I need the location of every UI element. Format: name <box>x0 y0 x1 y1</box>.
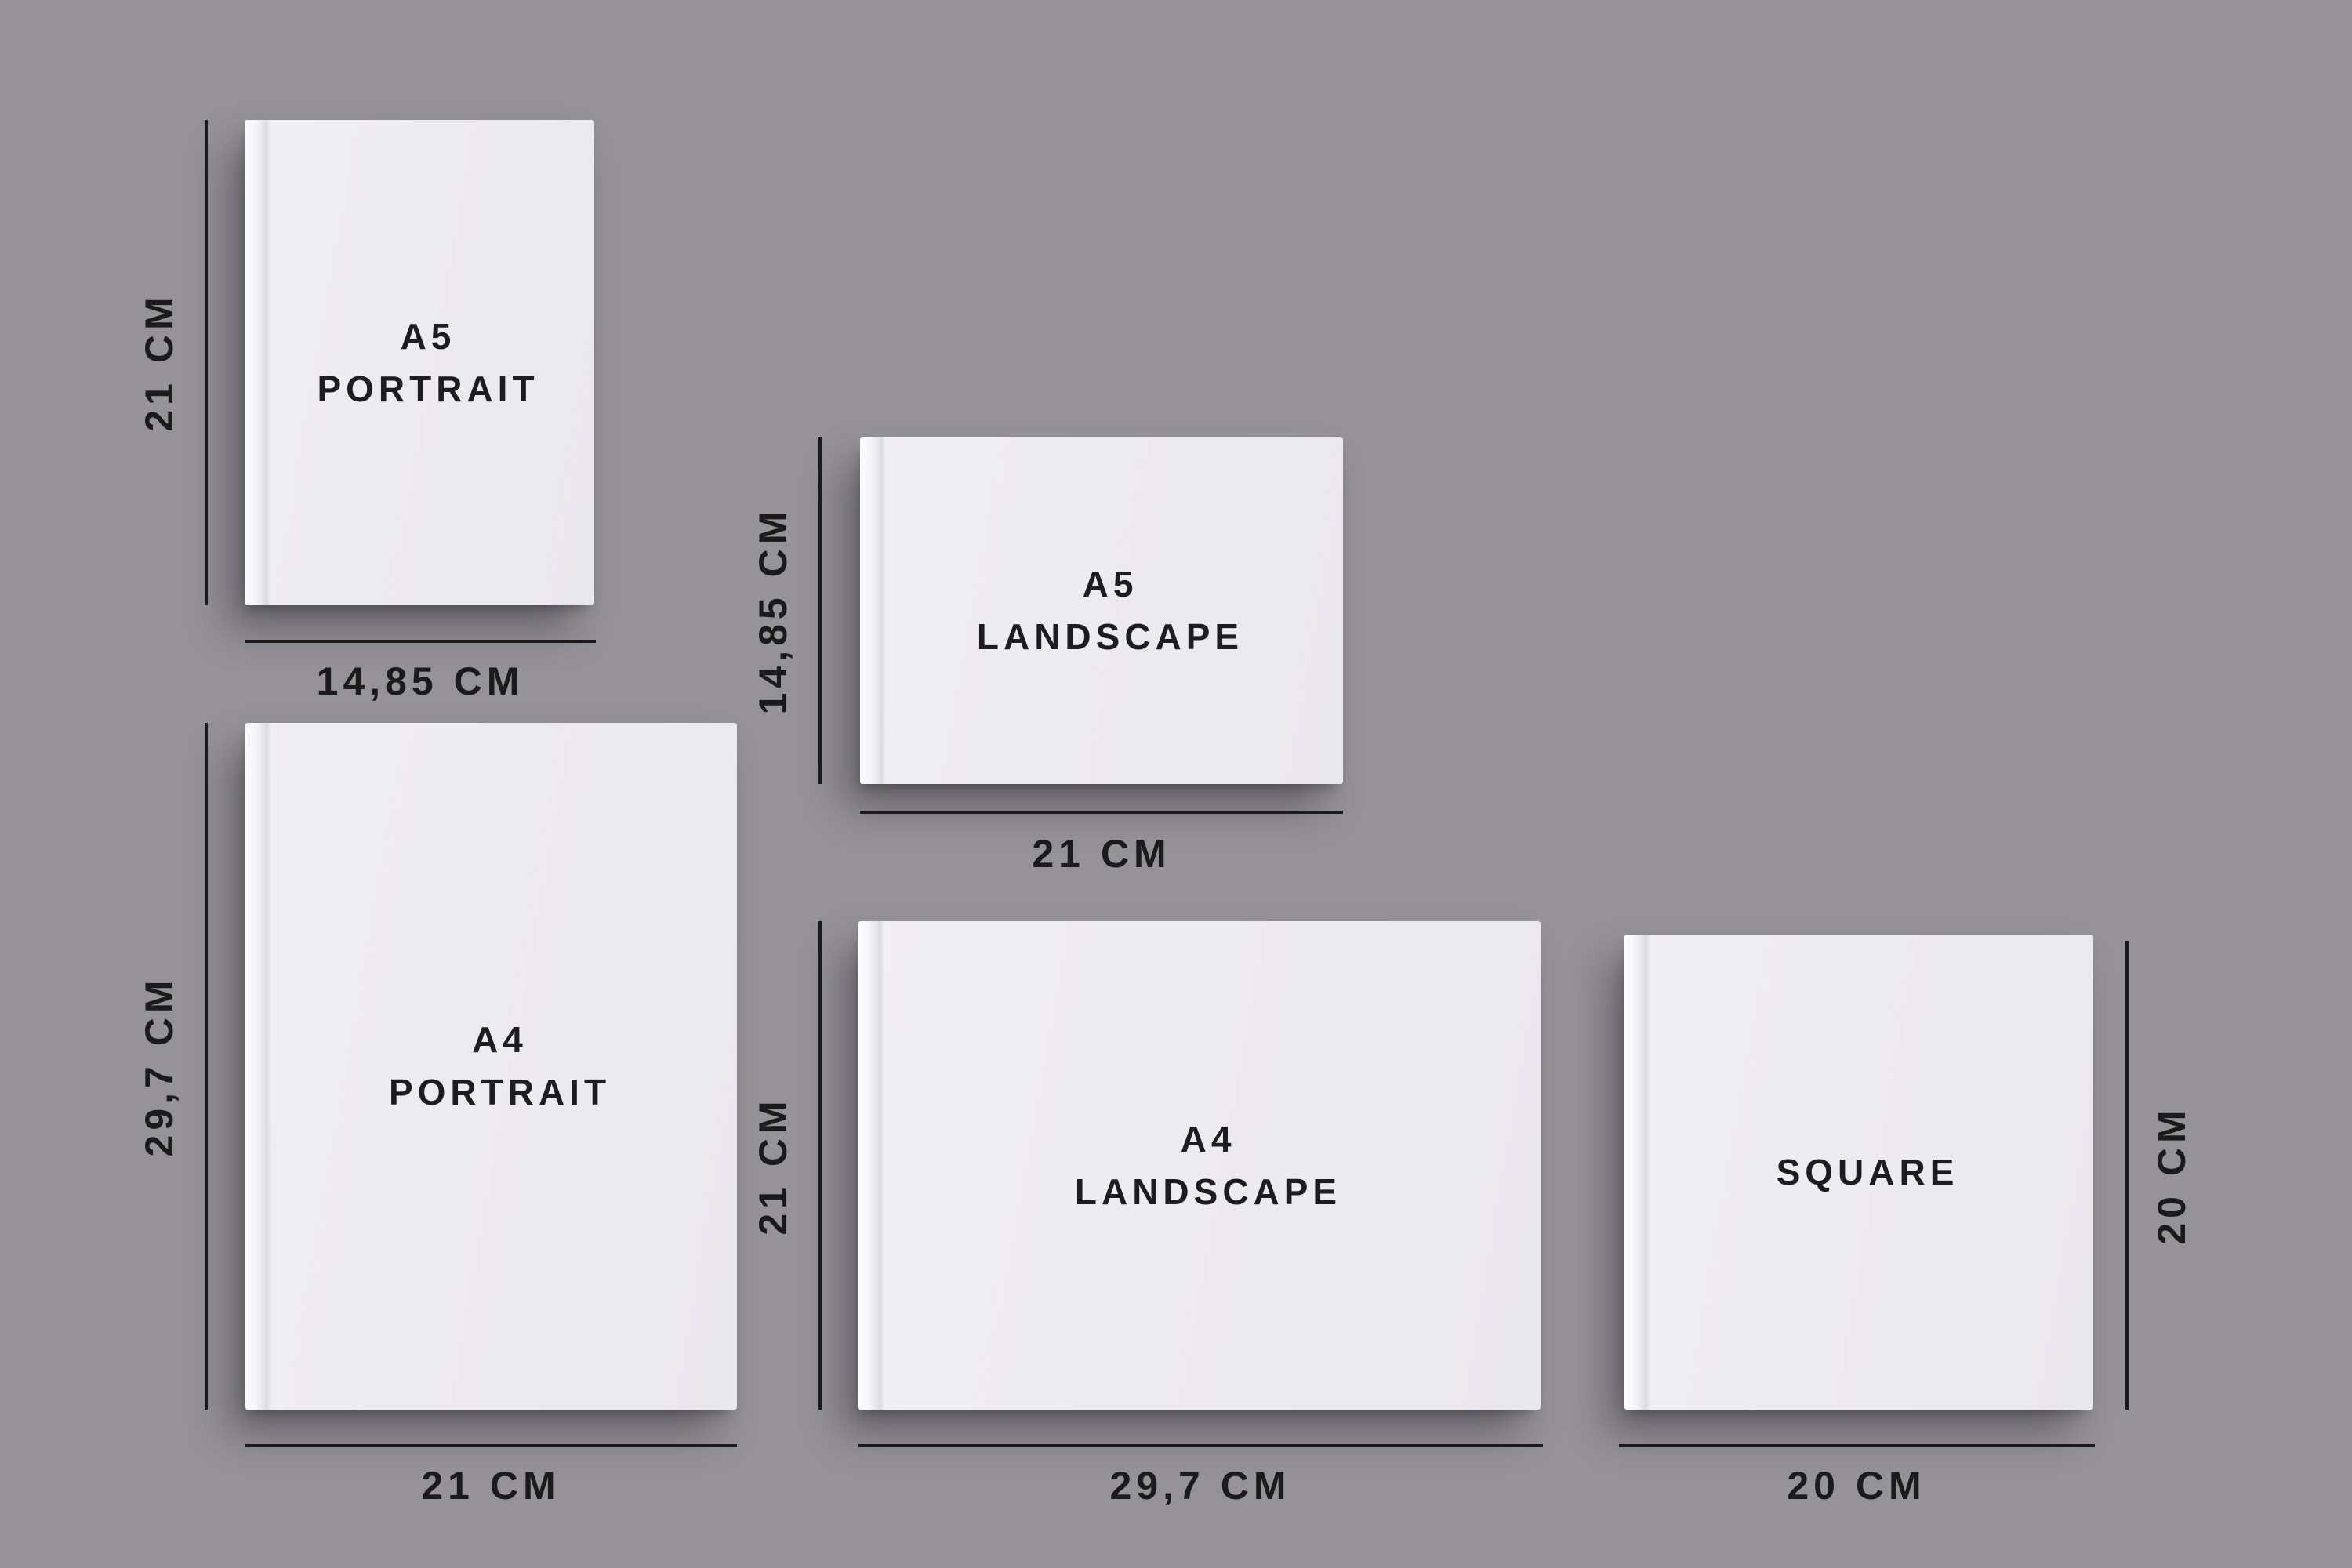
book-spine <box>1624 935 1650 1410</box>
book-title-line: A5 <box>317 310 539 363</box>
height-dimension-label: 21 CM <box>136 292 182 431</box>
book-spine <box>858 921 884 1410</box>
width-dimension-label: 21 CM <box>1032 831 1171 877</box>
book-a5-landscape: A5 LANDSCAPE <box>860 437 1343 784</box>
book-title: A4 PORTRAIT <box>372 1014 611 1119</box>
height-dimension-label: 21 CM <box>750 1096 796 1235</box>
width-dimension-line <box>245 640 596 643</box>
height-dimension-label: 20 CM <box>2149 1105 2194 1244</box>
book-title-line: LANDSCAPE <box>1075 1166 1341 1218</box>
book-title-line: A4 <box>1075 1113 1341 1166</box>
book-title-line: A5 <box>977 558 1243 611</box>
width-dimension-label: 29,7 CM <box>1110 1463 1291 1508</box>
book-a4-landscape: A4 LANDSCAPE <box>858 921 1541 1410</box>
book-spine <box>245 723 270 1410</box>
book-title: A4 LANDSCAPE <box>1058 1113 1341 1218</box>
book-square: SQUARE <box>1624 935 2093 1410</box>
book-title: A5 PORTRAIT <box>299 310 539 416</box>
width-dimension-line <box>860 811 1343 814</box>
height-dimension-label: 29,7 CM <box>136 976 182 1157</box>
book-a5-portrait: A5 PORTRAIT <box>245 120 594 605</box>
height-dimension-line <box>818 437 822 784</box>
book-spine <box>245 120 270 605</box>
width-dimension-line <box>245 1444 737 1447</box>
book-title: A5 LANDSCAPE <box>960 558 1243 663</box>
width-dimension-line <box>858 1444 1543 1447</box>
height-dimension-line <box>205 723 208 1410</box>
width-dimension-label: 21 CM <box>421 1463 560 1508</box>
height-dimension-line <box>205 120 208 605</box>
width-dimension-label: 20 CM <box>1787 1463 1926 1508</box>
book-title: SQUARE <box>1759 1146 1959 1199</box>
book-title-line: A4 <box>389 1014 611 1066</box>
width-dimension-label: 14,85 CM <box>317 659 524 704</box>
height-dimension-line <box>2125 941 2129 1410</box>
height-dimension-line <box>818 921 822 1410</box>
book-title-line: SQUARE <box>1777 1146 1959 1199</box>
book-title-line: PORTRAIT <box>389 1066 611 1119</box>
size-comparison-diagram: A5 PORTRAIT 21 CM 14,85 CM A5 LANDSCAPE … <box>0 0 2352 1568</box>
book-spine <box>860 437 885 784</box>
height-dimension-label: 14,85 CM <box>750 507 796 715</box>
book-title-line: LANDSCAPE <box>977 611 1243 663</box>
book-a4-portrait: A4 PORTRAIT <box>245 723 737 1410</box>
book-title-line: PORTRAIT <box>317 363 539 416</box>
width-dimension-line <box>1619 1444 2095 1447</box>
